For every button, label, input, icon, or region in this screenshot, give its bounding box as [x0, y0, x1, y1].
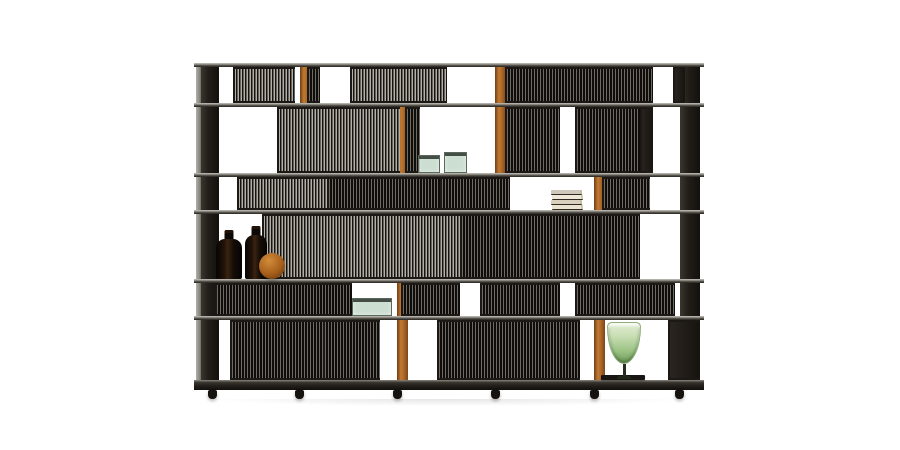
shelf-foot [590, 390, 599, 399]
slat-panel [323, 320, 380, 380]
shelf-board [194, 210, 704, 214]
slat-panel [575, 107, 640, 173]
slat-panel [505, 67, 653, 103]
dark-glass-bottle [216, 230, 242, 279]
side-end-panel [201, 63, 219, 390]
shelf-foot [675, 390, 684, 399]
slat-panel [233, 67, 295, 103]
shelf-board [194, 63, 704, 67]
book-stack [551, 187, 583, 210]
slat-panel [600, 214, 640, 279]
slat-panel [215, 283, 352, 316]
glass-box-rim [353, 299, 391, 302]
slat-panel [307, 67, 320, 103]
slat-panel [575, 283, 675, 316]
slat-panel [277, 107, 400, 173]
shelf-foot [491, 390, 500, 399]
teal-glass-box [444, 152, 467, 173]
slat-panel [327, 177, 440, 210]
slat-panel [237, 177, 327, 210]
vase-stem [623, 364, 626, 376]
shelf-board [194, 173, 704, 177]
vase-foot [617, 376, 631, 379]
book [552, 205, 583, 210]
bottle-body [216, 239, 242, 279]
green-glass-vase [607, 322, 641, 379]
shelf-board [194, 316, 704, 320]
plinth-shelf [194, 380, 704, 390]
slat-panel [505, 107, 560, 173]
shelf-board [194, 279, 704, 283]
slat-panel [460, 214, 600, 279]
wooden-sphere [259, 253, 285, 279]
shelf-foot [208, 390, 217, 399]
slat-panel [640, 107, 653, 173]
vase-bowl [607, 322, 641, 364]
shelf-board [194, 103, 704, 107]
slat-panel [230, 320, 323, 380]
slat-panel [602, 177, 650, 210]
slat-panel [437, 320, 580, 380]
teal-glass-box [352, 298, 392, 316]
product-photo-stage [0, 0, 900, 450]
slat-panel [440, 177, 510, 210]
slat-panel [480, 283, 560, 316]
slat-panel [668, 320, 700, 380]
glass-box-rim [445, 153, 466, 156]
slat-panel [673, 67, 685, 103]
slat-panel [401, 283, 460, 316]
shelving-unit [196, 63, 700, 403]
teal-glass-box [418, 155, 440, 173]
shelf-foot [295, 390, 304, 399]
slat-panel [262, 214, 460, 279]
shelf-foot [393, 390, 402, 399]
slat-panel [350, 67, 447, 103]
glass-box-rim [419, 156, 439, 159]
floor-shadow [198, 399, 698, 408]
